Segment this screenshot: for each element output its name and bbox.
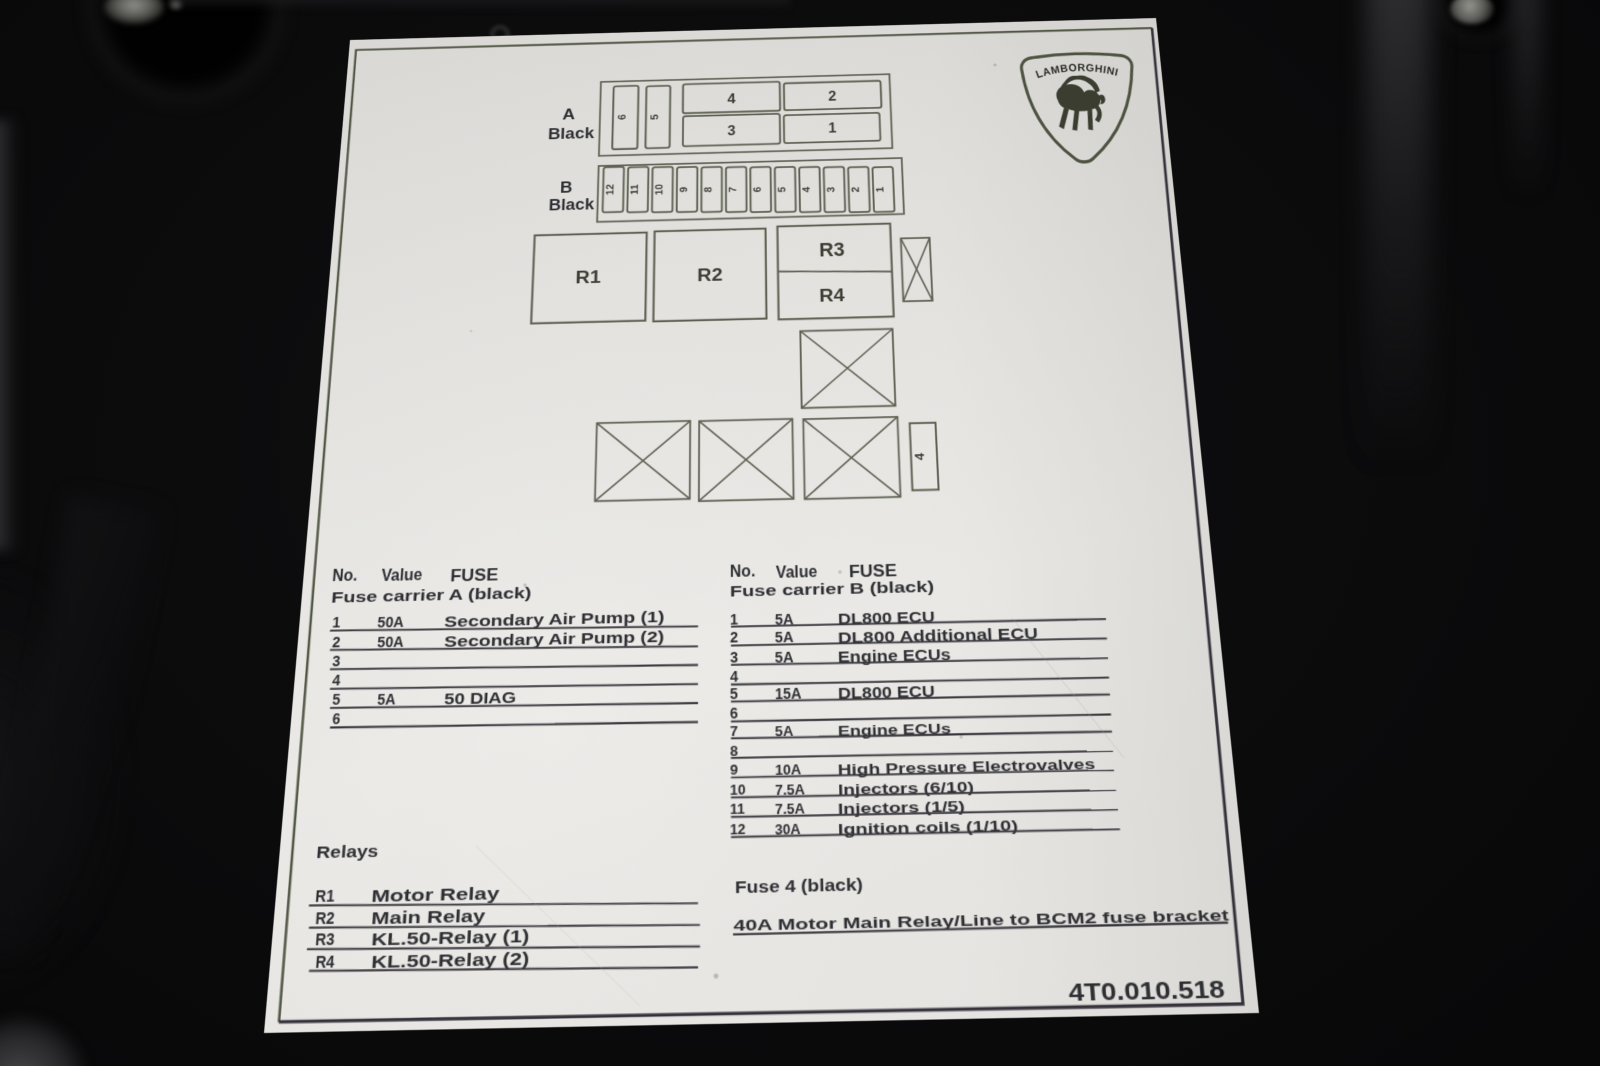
svg-text:4T0.010.518: 4T0.010.518	[1068, 975, 1227, 1007]
svg-text:Value: Value	[381, 566, 423, 585]
svg-text:3: 3	[727, 123, 736, 138]
svg-text:Injectors (6/10): Injectors (6/10)	[838, 780, 975, 799]
svg-text:A: A	[562, 106, 575, 124]
svg-text:5: 5	[649, 114, 661, 120]
svg-text:50A: 50A	[377, 633, 405, 651]
svg-text:12: 12	[605, 183, 617, 195]
svg-text:Value: Value	[776, 562, 817, 581]
svg-text:Fuse 4 (black): Fuse 4 (black)	[735, 875, 863, 897]
svg-text:Motor Relay: Motor Relay	[371, 884, 501, 906]
svg-text:4: 4	[913, 452, 927, 460]
svg-text:3: 3	[730, 649, 739, 667]
svg-text:R2: R2	[315, 908, 336, 928]
svg-text:Injectors (1/5): Injectors (1/5)	[838, 800, 966, 819]
svg-text:KL.50-Relay (1): KL.50-Relay (1)	[371, 927, 530, 950]
svg-text:No.: No.	[332, 566, 359, 585]
svg-text:2: 2	[850, 186, 862, 192]
svg-text:DL800 ECU: DL800 ECU	[838, 609, 936, 628]
svg-text:10: 10	[654, 183, 666, 195]
svg-text:6: 6	[730, 706, 739, 723]
svg-text:6: 6	[752, 186, 764, 192]
svg-text:11: 11	[629, 184, 641, 195]
svg-text:Relays: Relays	[316, 842, 379, 862]
svg-text:50A: 50A	[377, 613, 405, 631]
svg-text:6: 6	[617, 114, 629, 120]
svg-text:Black: Black	[548, 125, 595, 144]
svg-text:5A: 5A	[377, 691, 397, 709]
svg-text:4: 4	[730, 668, 739, 686]
svg-text:R1: R1	[575, 266, 601, 288]
svg-text:1: 1	[875, 186, 887, 192]
svg-text:8: 8	[703, 186, 715, 192]
svg-text:1: 1	[828, 121, 837, 136]
svg-text:7: 7	[727, 187, 739, 193]
svg-text:4: 4	[727, 91, 736, 106]
svg-text:R1: R1	[315, 886, 336, 906]
svg-text:R4: R4	[315, 953, 336, 972]
svg-text:1: 1	[332, 614, 342, 631]
svg-text:Main Relay: Main Relay	[371, 906, 487, 928]
svg-text:2: 2	[828, 89, 837, 104]
svg-text:4: 4	[801, 186, 813, 192]
svg-text:R2: R2	[697, 264, 723, 286]
svg-text:9: 9	[678, 186, 690, 192]
svg-text:5: 5	[776, 186, 788, 192]
svg-text:FUSE: FUSE	[450, 566, 499, 585]
svg-text:R3: R3	[819, 239, 845, 261]
svg-text:3: 3	[825, 186, 837, 192]
svg-text:7: 7	[730, 723, 738, 740]
svg-text:Black: Black	[548, 196, 594, 215]
svg-text:R4: R4	[819, 284, 845, 306]
svg-text:R3: R3	[315, 930, 336, 950]
svg-text:5: 5	[730, 685, 739, 703]
svg-text:No.: No.	[730, 562, 755, 581]
svg-text:B: B	[560, 179, 573, 197]
svg-text:2: 2	[730, 629, 738, 647]
